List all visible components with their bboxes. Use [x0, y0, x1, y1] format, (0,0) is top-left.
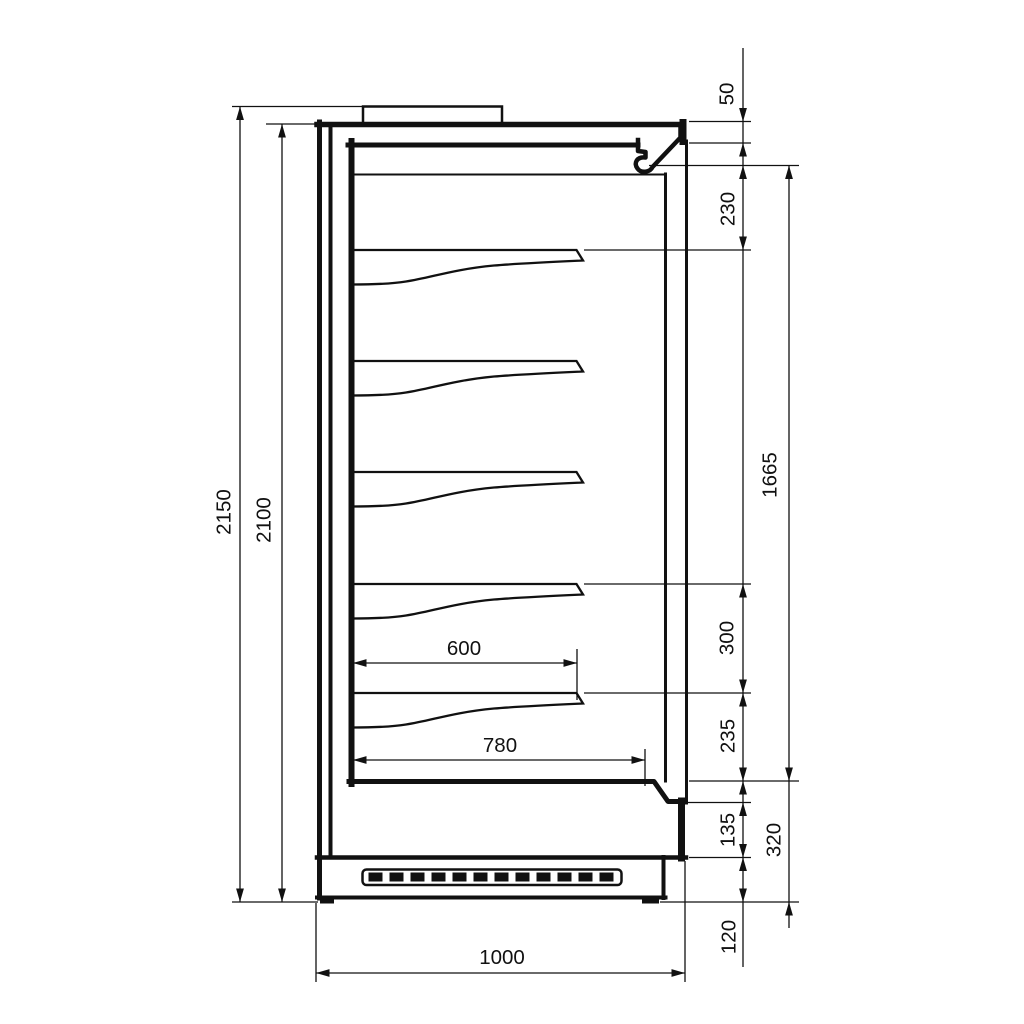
foot-left [320, 898, 334, 904]
rooftop-unit-box [363, 107, 502, 124]
dimension-labels: 2150 2100 50 230 1665 300 235 135 320 12… [213, 83, 786, 969]
shelf-4 [352, 584, 583, 619]
dim-label-display-opening-height: 1665 [759, 452, 782, 498]
foot-right [642, 898, 659, 904]
dim-label-shelf-spacing: 300 [716, 621, 739, 655]
shelf-1 [352, 250, 583, 285]
dim-label-body-height: 2100 [253, 497, 276, 543]
dim-label-plinth-height: 120 [718, 920, 741, 954]
technical-drawing-page: 2150 2100 50 230 1665 300 235 135 320 12… [0, 0, 1024, 1024]
dim-label-base-section-height: 320 [763, 823, 786, 857]
dim-label-shelf-depth: 600 [447, 637, 481, 660]
cabinet-structure [317, 107, 687, 904]
shelf-3 [352, 472, 583, 507]
dim-label-bottom-shelf-clearance: 235 [717, 719, 740, 753]
dim-label-air-outlet-height: 135 [717, 813, 740, 847]
cabinet-section-drawing: 2150 2100 50 230 1665 300 235 135 320 12… [0, 0, 1024, 1024]
grille-slots [369, 873, 614, 882]
dim-label-deck-depth: 780 [483, 734, 517, 757]
dim-label-canopy-to-first-shelf: 230 [717, 192, 740, 226]
dim-label-overall-height: 2150 [213, 489, 236, 535]
dim-label-top-clearance: 50 [716, 83, 739, 106]
dim-label-overall-depth: 1000 [479, 946, 525, 969]
shelf-2 [352, 361, 583, 396]
shelf-5 [352, 693, 583, 728]
floor-deck [349, 782, 681, 802]
